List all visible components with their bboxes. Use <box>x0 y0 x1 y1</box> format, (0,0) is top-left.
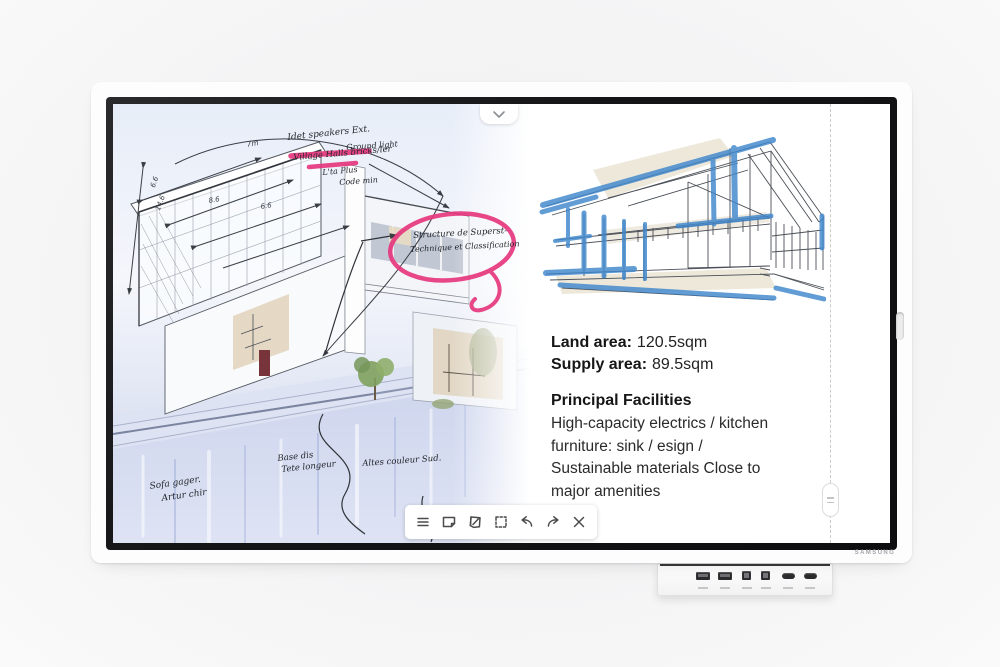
page-pull-handle[interactable] <box>822 483 839 517</box>
supply-area-value: 89.5sqm <box>652 356 713 373</box>
grip-lines-icon <box>827 497 834 499</box>
dimension-label: 7m <box>246 138 259 149</box>
product-photo-background: Idet speakers Ext. Ground light Village … <box>0 0 1000 667</box>
chevron-down-icon <box>491 110 507 119</box>
samsung-flip-display: Idet speakers Ext. Ground light Village … <box>91 82 912 563</box>
usb-b-port-1 <box>742 571 751 580</box>
undo-icon <box>518 513 536 531</box>
note-icon <box>440 513 458 531</box>
port-label <box>742 587 752 589</box>
samsung-logo: SAMSUNG <box>843 550 907 556</box>
facilities-line: furniture: sink / esign / <box>551 436 819 458</box>
house-sketch-blue-marker <box>538 118 826 333</box>
facilities-title: Principal Facilities <box>551 390 819 412</box>
menu-button[interactable] <box>410 509 436 535</box>
facilities-line: Sustainable materials Close to <box>551 458 819 480</box>
usb-a-port-1 <box>696 572 710 580</box>
note-import-button[interactable] <box>462 509 488 535</box>
close-button[interactable] <box>566 509 592 535</box>
close-icon <box>570 513 588 531</box>
land-area-label: Land area: <box>551 334 632 351</box>
note-button[interactable] <box>436 509 462 535</box>
grip-lines-icon <box>827 502 834 504</box>
selection-rect-icon <box>492 513 510 531</box>
facilities-line: major amenities <box>551 481 819 503</box>
supply-area-line: Supply area:89.5sqm <box>551 354 819 376</box>
hdmi-port-1 <box>782 573 795 579</box>
property-info-text[interactable]: Land area:120.5sqm Supply area:89.5sqm P… <box>551 332 819 502</box>
whiteboard-screen[interactable]: Idet speakers Ext. Ground light Village … <box>113 104 890 543</box>
facilities-line: High-capacity electrics / kitchen <box>551 413 819 435</box>
select-button[interactable] <box>488 509 514 535</box>
port-label <box>783 587 793 589</box>
redo-button[interactable] <box>540 509 566 535</box>
undo-button[interactable] <box>514 509 540 535</box>
usb-a-port-2 <box>718 572 732 580</box>
floating-toolbar <box>405 505 597 539</box>
port-label <box>720 587 730 589</box>
menu-icon <box>414 513 432 531</box>
land-area-value: 120.5sqm <box>637 334 707 351</box>
hdmi-port-2 <box>804 573 817 579</box>
land-area-line: Land area:120.5sqm <box>551 332 819 354</box>
port-label <box>805 587 815 589</box>
note-import-icon <box>466 513 484 531</box>
usb-b-port-2 <box>761 571 770 580</box>
top-menu-handle[interactable] <box>480 104 518 124</box>
display-bezel: Idet speakers Ext. Ground light Village … <box>106 97 897 550</box>
connectivity-tray <box>657 563 833 596</box>
port-label <box>761 587 771 589</box>
redo-icon <box>544 513 562 531</box>
port-label <box>698 587 708 589</box>
pen-holder-slot <box>896 312 904 340</box>
page-divider-dashed <box>830 104 831 543</box>
supply-area-label: Supply area: <box>551 356 647 373</box>
